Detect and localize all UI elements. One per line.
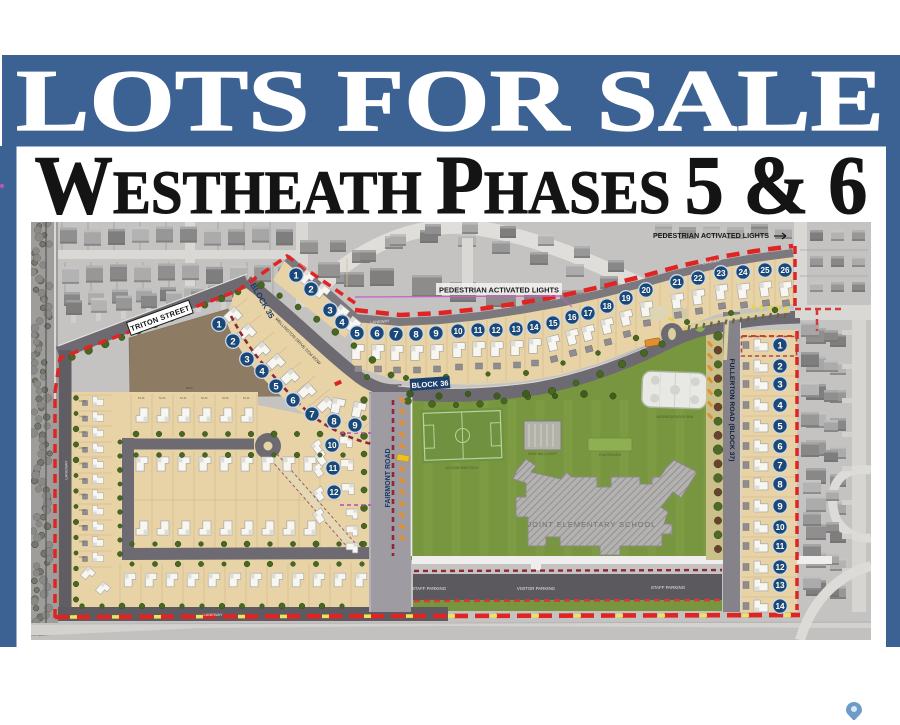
svg-text:10: 10: [775, 523, 785, 532]
svg-text:3: 3: [244, 354, 249, 365]
svg-text:18: 18: [602, 302, 612, 311]
svg-text:PEDESTRIAN ACTIVATED LIGHTS: PEDESTRIAN ACTIVATED LIGHTS: [439, 286, 559, 295]
svg-text:16: 16: [567, 313, 577, 322]
svg-text:34.59: 34.59: [79, 539, 86, 543]
svg-text:5: 5: [273, 381, 279, 392]
svg-text:BASE BALL COURT: BASE BALL COURT: [528, 452, 557, 456]
svg-text:12: 12: [491, 326, 501, 335]
svg-text:FAIRMONT ROAD: FAIRMONT ROAD: [385, 448, 392, 507]
svg-text:11: 11: [329, 464, 338, 473]
svg-text:8: 8: [413, 329, 418, 340]
svg-text:LANEWAY: LANEWAY: [64, 460, 69, 479]
svg-text:9: 9: [352, 420, 357, 431]
svg-text:17: 17: [583, 309, 593, 318]
svg-text:6: 6: [290, 395, 295, 406]
svg-text:19: 19: [621, 294, 631, 303]
svg-text:3: 3: [327, 305, 332, 316]
svg-text:52.46: 52.46: [222, 396, 229, 400]
svg-text:9: 9: [777, 501, 782, 512]
svg-text:34.59: 34.59: [79, 461, 86, 465]
svg-text:4: 4: [777, 400, 783, 411]
svg-text:NEIGHBOURHOOD RINK: NEIGHBOURHOOD RINK: [656, 415, 694, 419]
svg-text:LANEWAY: LANEWAY: [203, 612, 222, 617]
svg-text:34.59: 34.59: [79, 446, 86, 450]
svg-text:2: 2: [308, 284, 313, 295]
svg-text:12: 12: [329, 488, 339, 497]
svg-text:52.46: 52.46: [201, 396, 208, 400]
svg-text:12: 12: [775, 563, 785, 572]
svg-text:14: 14: [775, 602, 785, 611]
svg-text:9: 9: [433, 328, 438, 339]
svg-text:8: 8: [777, 479, 782, 490]
svg-text:52.46: 52.46: [243, 396, 250, 400]
svg-text:10: 10: [453, 327, 463, 336]
svg-text:52.46: 52.46: [159, 396, 166, 400]
svg-text:4: 4: [339, 317, 345, 328]
svg-text:1: 1: [216, 319, 222, 330]
svg-text:7: 7: [777, 460, 782, 471]
svg-text:AUTUMN WIND FIELD: AUTUMN WIND FIELD: [446, 466, 480, 470]
svg-text:7: 7: [309, 409, 314, 420]
svg-text:34.59: 34.59: [79, 508, 86, 512]
svg-text:FULLERTON ROAD (BLOCK 37): FULLERTON ROAD (BLOCK 37): [728, 359, 735, 462]
svg-text:STAFF PARKING: STAFF PARKING: [651, 585, 686, 590]
svg-text:4: 4: [259, 366, 265, 377]
svg-text:14: 14: [529, 323, 539, 332]
svg-text:11: 11: [776, 542, 785, 551]
svg-text:JOINT ELEMENTARY SCHOOL: JOINT ELEMENTARY SCHOOL: [528, 520, 657, 529]
svg-text:5: 5: [354, 328, 360, 339]
svg-text:STAFF PARKING: STAFF PARKING: [412, 586, 447, 591]
svg-text:34.59: 34.59: [79, 477, 86, 481]
svg-text:52.46: 52.46: [180, 396, 187, 400]
svg-text:2: 2: [230, 336, 235, 347]
svg-text:22: 22: [693, 274, 703, 283]
svg-text:PLAYGROUND: PLAYGROUND: [599, 453, 622, 457]
svg-text:21: 21: [672, 278, 682, 287]
svg-text:6: 6: [374, 328, 379, 339]
svg-text:24: 24: [738, 268, 748, 277]
svg-text:52.46: 52.46: [138, 396, 145, 400]
svg-text:10: 10: [327, 441, 337, 450]
svg-text:34.59: 34.59: [79, 524, 86, 528]
svg-text:15: 15: [548, 319, 558, 328]
svg-text:25: 25: [760, 266, 770, 275]
svg-text:34.59: 34.59: [79, 399, 86, 403]
svg-text:11: 11: [474, 326, 483, 335]
svg-text:8: 8: [331, 416, 336, 427]
svg-text:34.59: 34.59: [79, 555, 86, 559]
svg-text:26: 26: [780, 266, 790, 275]
svg-text:13: 13: [511, 325, 521, 334]
svg-text:34.59: 34.59: [79, 493, 86, 497]
svg-text:20: 20: [641, 286, 651, 295]
svg-text:2: 2: [777, 361, 782, 372]
svg-text:34.59: 34.59: [79, 415, 86, 419]
svg-text:13: 13: [775, 581, 785, 590]
svg-text:7: 7: [393, 329, 398, 340]
svg-text:PEDESTRIAN ACTIVATED LIGHTS: PEDESTRIAN ACTIVATED LIGHTS: [653, 231, 769, 240]
svg-text:3: 3: [777, 379, 782, 390]
svg-text:1: 1: [293, 270, 299, 281]
svg-text:1: 1: [777, 340, 783, 351]
svg-text:LOTS FOR SALE: LOTS FOR SALE: [16, 53, 884, 150]
svg-text:5: 5: [777, 421, 783, 432]
svg-text:6: 6: [777, 441, 782, 452]
svg-text:9643: 9643: [186, 386, 193, 390]
svg-text:23: 23: [716, 269, 726, 278]
svg-text:VISITOR PARKING: VISITOR PARKING: [517, 586, 556, 591]
svg-text:34.59: 34.59: [79, 430, 86, 434]
